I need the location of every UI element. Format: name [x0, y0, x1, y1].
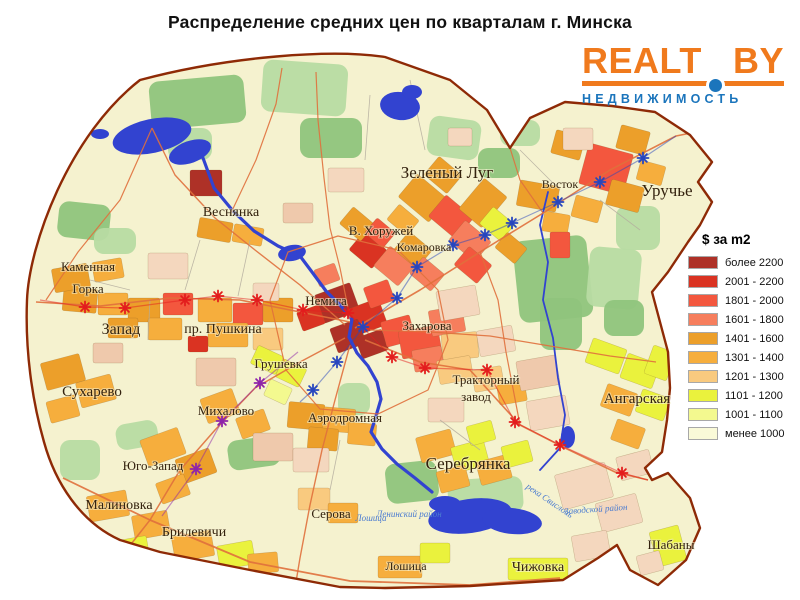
metro-station-marker-line-red	[252, 295, 263, 306]
park-area	[60, 440, 100, 480]
legend-item-label: 1201 - 1300	[725, 371, 784, 383]
legend-item: менее 1000	[688, 424, 785, 443]
map-label: Веснянка	[203, 205, 260, 220]
map-label: Малиновка	[85, 498, 153, 513]
legend-item-label: 2001 - 2200	[725, 276, 784, 288]
map-label: Зеленый Луг	[401, 163, 494, 182]
metro-station-marker-line-red	[387, 352, 398, 363]
metro-station-marker-line-red	[343, 308, 354, 319]
lake	[402, 85, 422, 99]
legend-title: $ за m2	[702, 232, 785, 247]
legend-item-label: 1301 - 1400	[725, 352, 784, 364]
map-label: Комаровка	[397, 240, 452, 254]
park-area	[604, 300, 644, 336]
map-label: Брилевичи	[162, 525, 227, 540]
metro-station-marker-line-blue	[332, 357, 343, 368]
legend-item-label: 1801 - 2000	[725, 295, 784, 307]
legend-item-label: менее 1000	[725, 428, 785, 440]
logo-by-text: BY	[733, 44, 784, 78]
price-quarter	[148, 253, 188, 279]
map-label: В. Хоружей	[349, 223, 413, 238]
legend-item-label: 1601 - 1800	[725, 314, 784, 326]
price-quarter	[93, 343, 123, 363]
price-quarter	[428, 398, 464, 422]
map-label: Михалово	[198, 403, 254, 418]
park-area	[300, 118, 362, 158]
price-quarter	[448, 128, 472, 146]
legend-item-label: 1101 - 1200	[725, 390, 783, 402]
park-area	[94, 228, 136, 254]
map-label: Уручье	[641, 181, 692, 200]
lake	[91, 129, 109, 139]
price-quarter	[550, 232, 570, 258]
legend-color-swatch	[688, 294, 718, 307]
legend-item-label: 1401 - 1600	[725, 333, 784, 345]
map-label: Грушевка	[254, 356, 308, 371]
metro-station-marker-line-blue	[412, 262, 423, 273]
page-title: Распределение средних цен по кварталам г…	[0, 12, 800, 33]
price-quarter	[188, 336, 208, 352]
map-label: Каменная	[61, 259, 115, 274]
logo-realt-text: REALT	[582, 44, 702, 78]
map-water-label: Лошица	[355, 513, 387, 523]
price-quarter	[293, 448, 329, 472]
metro-station-marker-line-blue	[507, 218, 518, 229]
legend-color-swatch	[688, 256, 718, 269]
map-label: Серебрянка	[426, 454, 511, 473]
map-label: Восток	[542, 177, 579, 191]
legend-item: 1801 - 2000	[688, 291, 785, 310]
price-quarter	[253, 433, 293, 461]
metro-station-marker-line-red	[80, 302, 91, 313]
legend-item: 1001 - 1100	[688, 405, 785, 424]
legend-items: более 22002001 - 22001801 - 20001601 - 1…	[688, 253, 785, 443]
park-area	[540, 298, 582, 350]
map-label: Шабаны	[648, 537, 695, 552]
metro-station-marker-line-blue	[358, 322, 369, 333]
metro-station-marker-line-purple	[191, 464, 202, 475]
metro-station-marker-line-blue	[308, 385, 319, 396]
map-label: Горка	[72, 281, 103, 296]
price-quarter	[283, 203, 313, 223]
map-label: Запад	[102, 321, 141, 338]
price-quarter	[148, 318, 182, 340]
map-label: Аэродромная	[308, 410, 382, 425]
price-quarter	[541, 211, 570, 235]
legend-item: 2001 - 2200	[688, 272, 785, 291]
metro-station-marker-line-blue	[595, 177, 606, 188]
legend-color-swatch	[688, 332, 718, 345]
legend-color-swatch	[688, 389, 718, 402]
legend-color-swatch	[688, 427, 718, 440]
legend-item-label: более 2200	[725, 257, 783, 269]
metro-station-marker-line-blue	[553, 197, 564, 208]
map-label: Тракторный	[452, 372, 519, 387]
park-area	[260, 59, 348, 117]
map-label: Ангарская	[604, 391, 671, 407]
logo-subtitle: НЕДВИЖИМОСТЬ	[582, 92, 784, 106]
price-legend: $ за m2 более 22002001 - 22001801 - 2000…	[688, 232, 785, 443]
map-label: пр. Пушкина	[184, 322, 262, 337]
legend-color-swatch	[688, 351, 718, 364]
legend-item: 1401 - 1600	[688, 329, 785, 348]
price-quarter	[563, 128, 593, 150]
legend-item-label: 1001 - 1100	[725, 409, 783, 421]
metro-station-marker-line-red	[420, 363, 431, 374]
legend-color-swatch	[688, 313, 718, 326]
map-label: Чижовка	[512, 560, 565, 575]
map-label: Лошица	[385, 559, 427, 573]
metro-station-marker-line-red	[120, 303, 131, 314]
price-quarter	[196, 358, 236, 386]
legend-color-swatch	[688, 275, 718, 288]
metro-station-marker-line-red	[617, 468, 628, 479]
metro-station-marker-line-blue	[638, 153, 649, 164]
metro-station-marker-line-purple	[255, 378, 266, 389]
legend-color-swatch	[688, 408, 718, 421]
logo-wordmark: REALT BY	[582, 44, 784, 78]
legend-item: 1101 - 1200	[688, 386, 785, 405]
metro-station-marker-line-red	[180, 295, 191, 306]
metro-station-marker-line-red	[510, 417, 521, 428]
metro-station-marker-line-red	[555, 440, 566, 451]
map-label: Серова	[311, 506, 351, 521]
map-label: завод	[461, 389, 491, 404]
metro-station-marker-line-red	[213, 291, 224, 302]
price-quarter	[328, 168, 364, 192]
map-label: Сухарево	[62, 384, 122, 400]
legend-item: 1601 - 1800	[688, 310, 785, 329]
metro-station-marker-line-blue	[480, 230, 491, 241]
legend-item: 1201 - 1300	[688, 367, 785, 386]
metro-station-marker-line-blue	[392, 293, 403, 304]
legend-item: более 2200	[688, 253, 785, 272]
legend-item: 1301 - 1400	[688, 348, 785, 367]
legend-color-swatch	[688, 370, 718, 383]
realt-by-logo: REALT BY НЕДВИЖИМОСТЬ	[582, 44, 784, 106]
map-label: Немига	[305, 293, 347, 308]
map-label: Юго-Запад	[123, 458, 184, 473]
logo-underline-bar	[582, 81, 784, 86]
price-quarter	[198, 298, 232, 322]
map-label: Захарова	[402, 318, 451, 333]
